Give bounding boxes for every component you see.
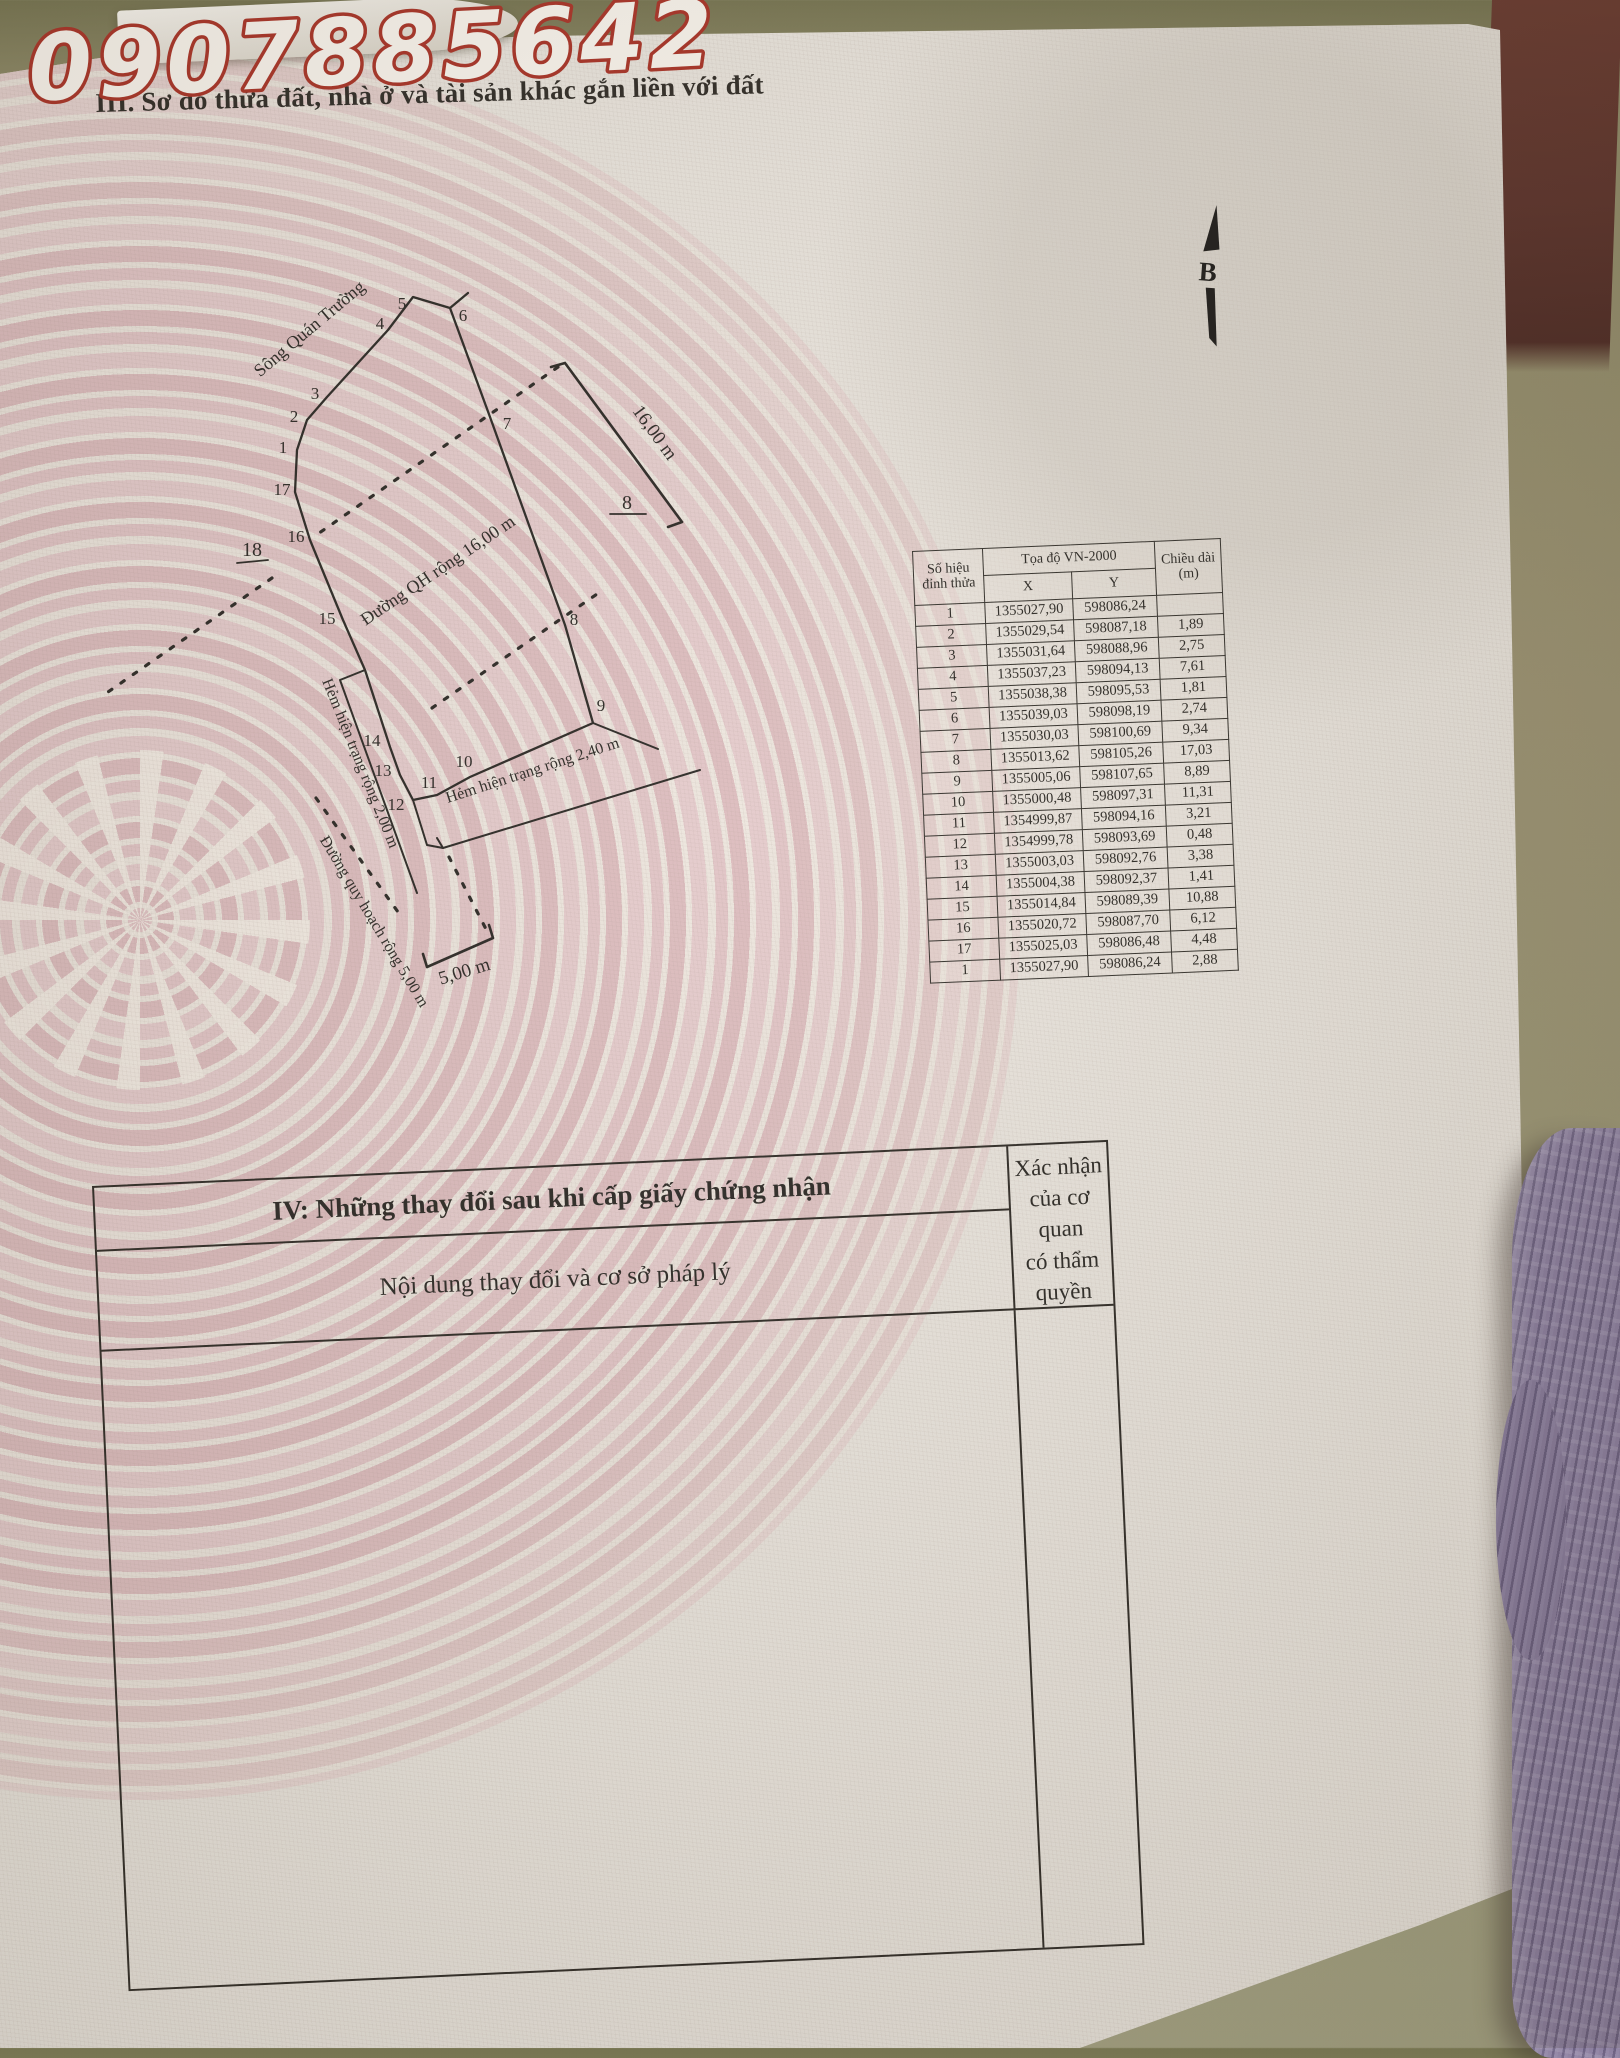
section4-right-header: Xác nhận của cơ quan có thẩm quyền xyxy=(1006,1142,1113,1310)
vertex-labels: 1 2 3 4 5 6 7 8 9 10 11 12 13 14 15 16 1… xyxy=(274,294,606,814)
vertex-label: 9 xyxy=(597,696,606,715)
vertex-label: 11 xyxy=(421,773,437,792)
section4-right-line1: Xác nhận của cơ quan xyxy=(1014,1153,1103,1243)
section4-box: IV: Những thay đổi sau khi cấp giấy chứn… xyxy=(92,1140,1145,1991)
vertex-label: 7 xyxy=(503,414,512,433)
vertex-label: 17 xyxy=(274,480,292,499)
qh-road-label: Đường QH rộng 16,00 m xyxy=(357,511,519,629)
planning-dotted-lines xyxy=(108,367,597,933)
phone-number-watermark: 0907885642 xyxy=(26,0,721,123)
vertex-label: 3 xyxy=(311,384,320,403)
col-header-vertex: Số hiệu đỉnh thửa xyxy=(913,549,985,606)
purple-knit-bump xyxy=(1496,1380,1566,1660)
vertex-label: 10 xyxy=(456,752,473,771)
coordinate-table-body: 11355027,90598086,2421355029,54598087,18… xyxy=(915,593,1239,984)
vertex-label: 6 xyxy=(459,306,468,325)
vertex-label: 2 xyxy=(290,407,299,426)
vertex-label: 4 xyxy=(376,314,385,333)
vertex-label: 5 xyxy=(398,294,407,313)
vertex-label: 1 xyxy=(279,438,288,457)
river-label: Sông Quán Trường xyxy=(250,276,369,380)
vertex-label: 13 xyxy=(375,761,392,780)
col-header-x: X xyxy=(984,572,1073,603)
col-header-length: Chiều dài (m) xyxy=(1154,539,1222,596)
plan-road-label: Đường quy hoạch rộng 5,00 m xyxy=(316,833,432,1011)
adjacent-parcel-18: 18 xyxy=(242,539,262,561)
north-arrow-tail xyxy=(1202,288,1221,347)
coordinate-table: Số hiệu đỉnh thửa Tọa độ VN-2000 Chiều d… xyxy=(912,538,1239,984)
vertex-label: 12 xyxy=(388,795,405,814)
north-arrow: B xyxy=(1194,204,1227,346)
col-header-y: Y xyxy=(1072,568,1157,598)
north-label: B xyxy=(1198,256,1218,287)
vertex-label: 14 xyxy=(364,731,382,750)
adjacent-parcel-8: 8 xyxy=(622,492,632,514)
section4-right-line2: có thẩm quyền xyxy=(1025,1246,1100,1305)
vertex-label: 8 xyxy=(570,610,579,629)
vertex-label: 16 xyxy=(288,527,305,546)
photo-scene: { "photo": { "phone_watermark": "0907885… xyxy=(0,0,1620,2048)
section4-content-cell xyxy=(102,1310,1043,1989)
coordinate-table-wrap: Số hiệu đỉnh thửa Tọa độ VN-2000 Chiều d… xyxy=(912,538,1239,984)
vertex-label: 15 xyxy=(319,609,336,628)
dim-16m-label: 16,00 m xyxy=(628,401,682,464)
north-arrow-head xyxy=(1203,204,1222,252)
